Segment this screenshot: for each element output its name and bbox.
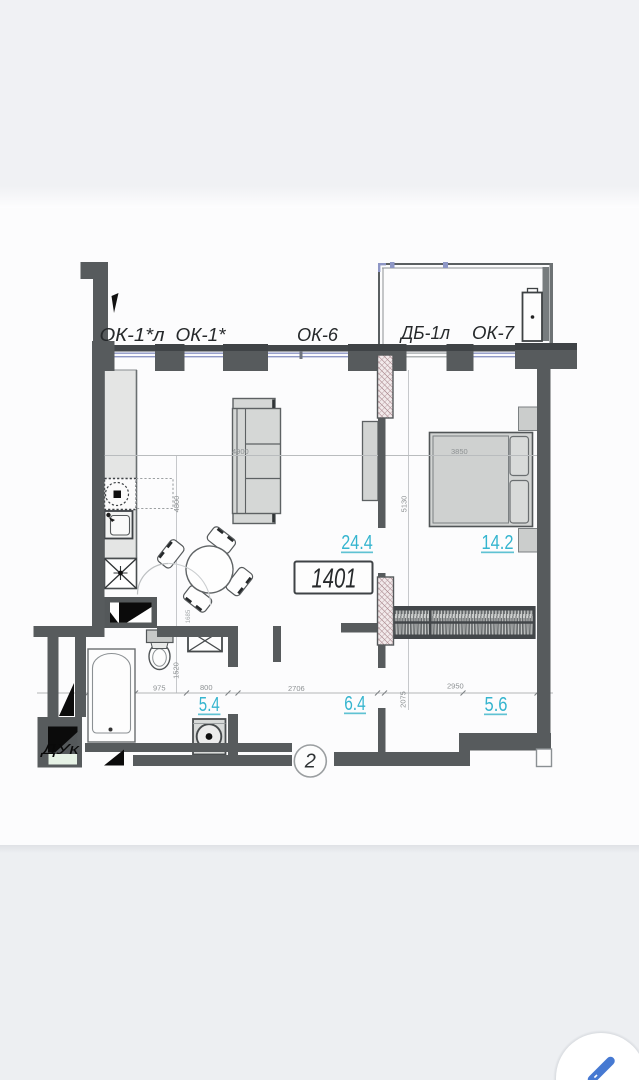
svg-text:800: 800 bbox=[200, 683, 213, 692]
svg-text:1685: 1685 bbox=[186, 609, 192, 623]
svg-text:ОК-6: ОК-6 bbox=[297, 325, 339, 345]
svg-text:6.4: 6.4 bbox=[344, 693, 366, 715]
svg-text:ДБ-1л: ДБ-1л bbox=[399, 323, 450, 343]
svg-text:5.4: 5.4 bbox=[199, 694, 220, 716]
svg-text:ОК-1*л: ОК-1*л bbox=[100, 325, 165, 345]
svg-text:1401: 1401 bbox=[312, 563, 357, 594]
svg-text:4900: 4900 bbox=[232, 447, 249, 456]
svg-text:ОК-1*: ОК-1* bbox=[176, 325, 227, 345]
svg-text:1520: 1520 bbox=[172, 662, 181, 679]
svg-text:975: 975 bbox=[153, 684, 166, 693]
svg-text:14.2: 14.2 bbox=[482, 532, 514, 554]
svg-text:2: 2 bbox=[304, 751, 316, 773]
svg-text:3850: 3850 bbox=[451, 447, 468, 456]
svg-text:2075: 2075 bbox=[399, 691, 408, 708]
svg-text:2950: 2950 bbox=[447, 682, 464, 691]
svg-text:5130: 5130 bbox=[400, 496, 409, 513]
svg-text:2706: 2706 bbox=[288, 684, 305, 693]
svg-text:ОК-7: ОК-7 bbox=[472, 323, 515, 343]
svg-text:5.6: 5.6 bbox=[485, 694, 508, 716]
svg-text:ДУк: ДУк bbox=[39, 742, 80, 758]
svg-text:24.4: 24.4 bbox=[341, 532, 373, 554]
